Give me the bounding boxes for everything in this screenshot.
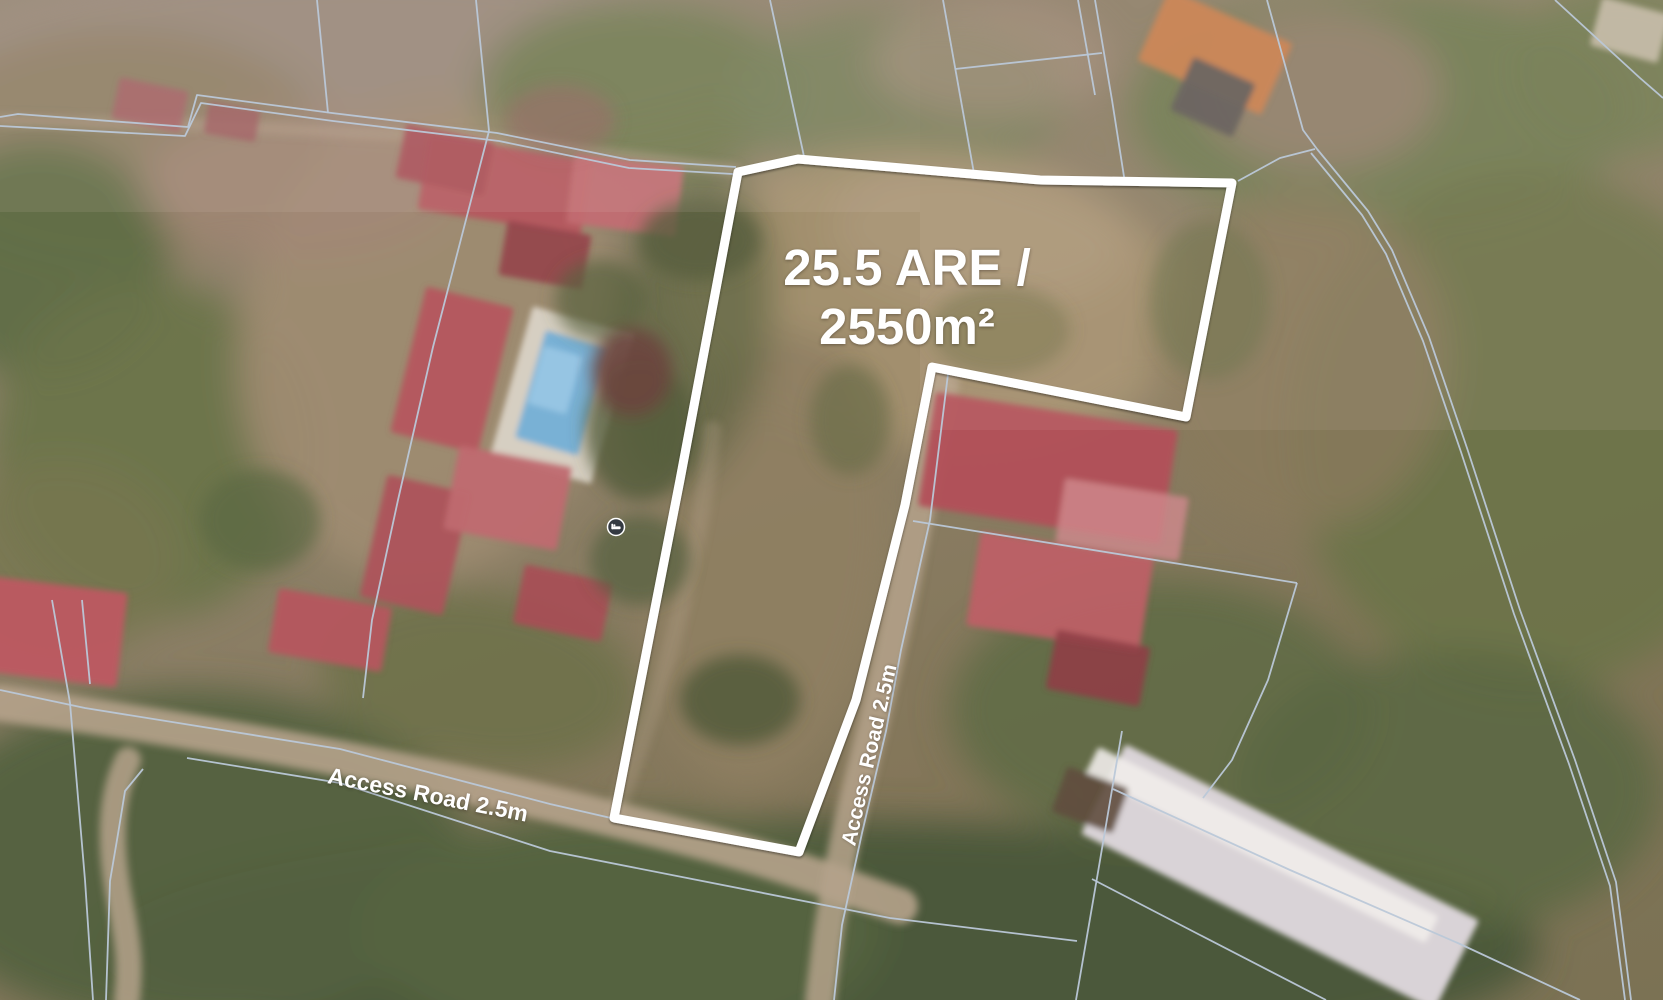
plot-area-label-line2: 2550m² <box>783 297 1031 356</box>
tree-clump <box>200 470 320 570</box>
building-roof <box>268 588 393 672</box>
tree-clump <box>680 655 800 745</box>
plot-area-label: 25.5 ARE / 2550m² <box>783 238 1031 356</box>
satellite-imagery <box>0 0 1663 1000</box>
imagery-seam <box>0 0 920 212</box>
plot-area-label-line1: 25.5 ARE / <box>783 238 1031 297</box>
tree-clump <box>555 260 645 340</box>
lodging-marker[interactable] <box>608 519 625 536</box>
satellite-map-canvas[interactable]: 25.5 ARE / 2550m² Access Road 2.5m Acces… <box>0 0 1663 1000</box>
tree-clump <box>592 328 672 416</box>
imagery-seam <box>920 0 1663 430</box>
tree-clump <box>810 365 890 475</box>
